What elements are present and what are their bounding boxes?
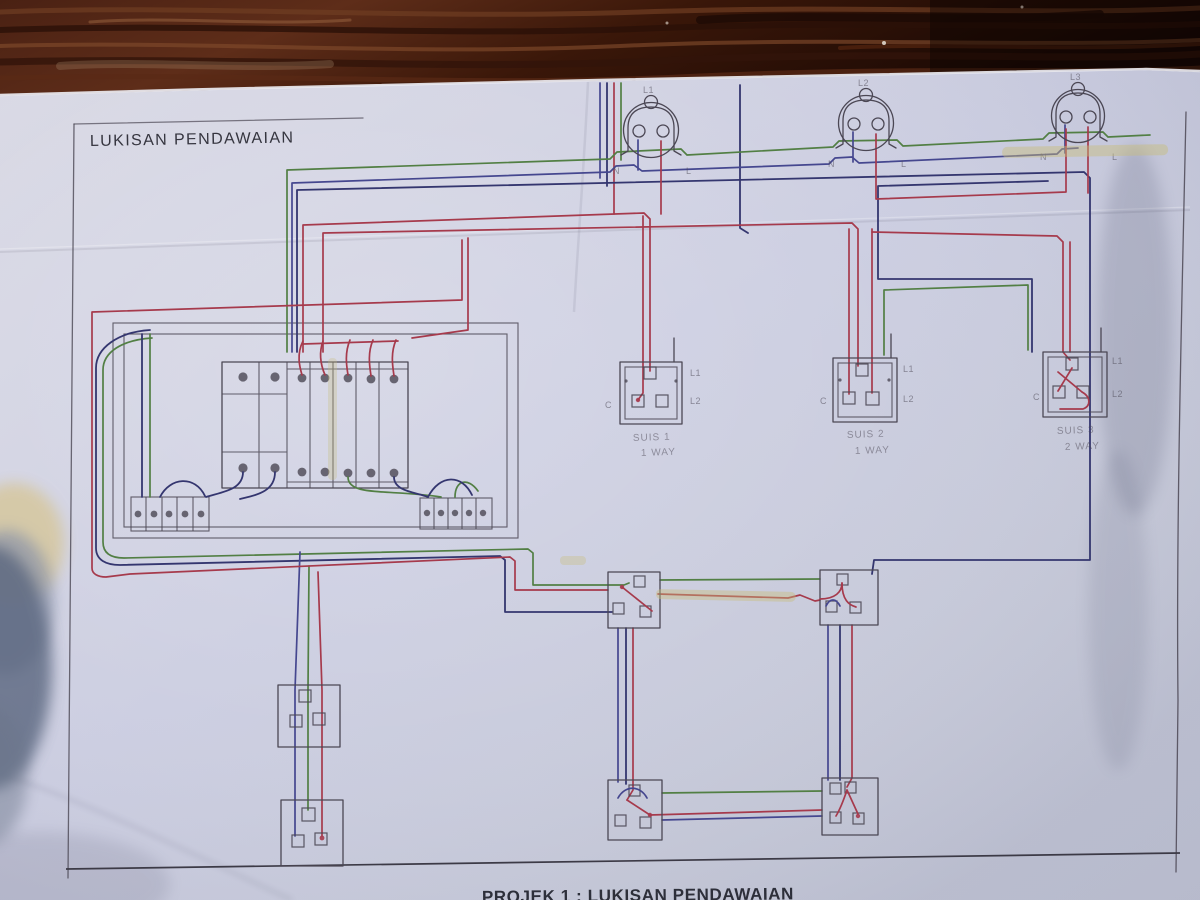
breaker-terminal [298,468,307,477]
wire-junction [856,814,860,818]
wire-junction [636,398,640,402]
terminal-label-l2: L2 [1112,389,1123,399]
switch-type: 1 WAY [855,445,890,457]
earth-ring-top [660,579,820,580]
wire-junction [620,585,624,589]
lamp-label: L1 [643,85,654,95]
link-terminal [438,510,444,516]
pencil-dot [887,378,890,381]
pencil-dot [674,379,677,382]
terminal-label-c: C [820,396,827,406]
page-title: LUKISAN PENDAWAIAN [90,129,295,150]
link-terminal [424,510,430,516]
breaker-terminal [270,372,279,381]
pencil-dot [838,378,841,381]
wood-grain-streak [90,20,350,22]
dust-speck [1021,6,1024,9]
link-terminal [182,511,189,518]
lamp-label: L3 [1070,72,1081,82]
link-terminal [151,511,158,518]
dust-speck [666,22,669,25]
terminal-label-l2: L2 [903,394,914,404]
lamp-live-mark: L [901,159,907,169]
terminal-label-l1: L1 [903,364,914,374]
switch-type: 2 WAY [1065,441,1100,453]
lamp-neutral-mark: N [828,159,835,169]
link-terminal [135,511,142,518]
highlighter-mark [328,358,337,480]
breaker-terminal [390,469,399,478]
photo-of-wiring-diagram: LUKISAN PENDAWAIAN PROJEK 1 : LUKISAN PE… [0,0,1200,900]
link-terminal [452,510,458,516]
link-terminal [166,511,173,518]
switch-name: SUIS 3 [1057,425,1095,437]
breaker-terminal [344,469,353,478]
terminal-label-l1: L1 [690,368,701,378]
link-terminal [466,510,472,516]
terminal-label-l1: L1 [1112,356,1123,366]
paper-shadow [1088,450,1148,770]
wire-junction [648,813,652,817]
breaker-terminal [238,372,247,381]
footer-title: PROJEK 1 : LUKISAN PENDAWAIAN [482,884,794,900]
switch-type: 1 WAY [641,447,676,459]
wood-grain-sheen [60,64,330,66]
terminal-label-c: C [1033,392,1040,402]
diagram-canvas: LUKISAN PENDAWAIAN PROJEK 1 : LUKISAN PE… [0,0,1200,900]
pencil-dot [624,379,627,382]
dust-speck [882,41,886,45]
switch-name: SUIS 1 [633,432,671,444]
terminal-label-c: C [605,400,612,410]
lamp-live-mark: L [686,166,692,176]
lamp-label: L2 [858,78,869,88]
terminal-label-l2: L2 [690,396,701,406]
highlighter-mark [560,556,586,565]
lamp-neutral-mark: N [613,166,620,176]
link-terminal [198,511,205,518]
wire-junction [320,836,325,841]
breaker-terminal [367,469,376,478]
switch-name: SUIS 2 [847,429,885,441]
link-terminal [480,510,486,516]
